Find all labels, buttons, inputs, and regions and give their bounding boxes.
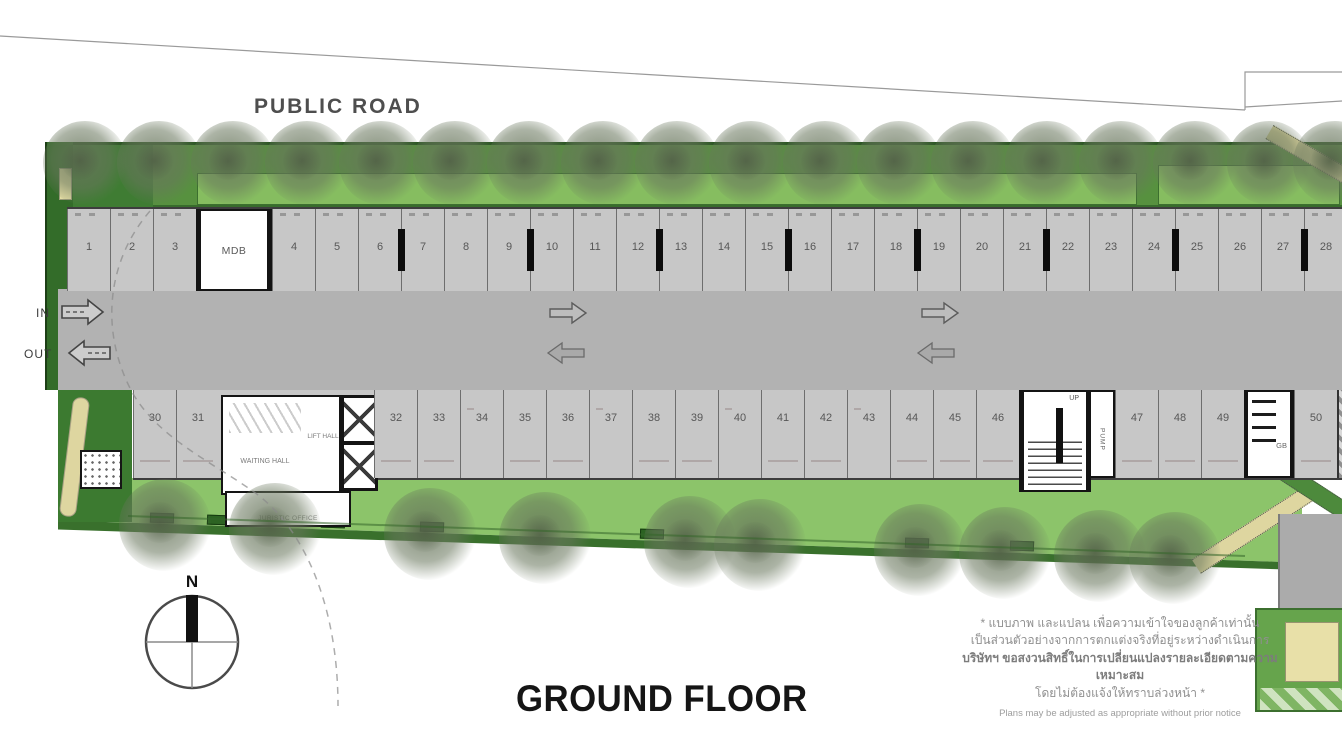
juristic-office-room: JURISTIC OFFICE xyxy=(225,491,351,527)
disclaimer-line-2: เป็นส่วนตัวอย่างจากการตกแต่งจริงที่อยู่ร… xyxy=(948,632,1292,649)
parking-stall-18: 18 xyxy=(874,209,917,291)
stall-number: 11 xyxy=(574,241,616,253)
north-compass: N xyxy=(135,565,250,700)
lift-shaft-1 xyxy=(341,395,378,444)
hedge-planter xyxy=(150,512,174,523)
stair-room: UP xyxy=(1019,390,1091,492)
disclaimer-line-4: โดยไม่ต้องแจ้งให้ทราบล่วงหน้า * xyxy=(948,685,1292,702)
stall-number: 41 xyxy=(762,412,804,424)
parking-stall-49: 49 xyxy=(1201,390,1244,478)
stall-number: 1 xyxy=(68,241,110,253)
stall-number: 39 xyxy=(676,412,718,424)
stall-number: 21 xyxy=(1004,241,1046,253)
stall-number: 42 xyxy=(805,412,847,424)
driveway-aisle xyxy=(58,289,1342,390)
parking-stall-10: 10 xyxy=(530,209,573,291)
parking-stall-42: 42 xyxy=(804,390,847,478)
parking-stall-26: 26 xyxy=(1218,209,1261,291)
waiting-hall-label: WAITING HALL xyxy=(223,458,307,465)
stall-number: 3 xyxy=(154,241,196,253)
stall-number: 13 xyxy=(660,241,702,253)
parking-stall-3: 3 xyxy=(153,209,196,291)
stall-number: 31 xyxy=(177,412,219,424)
parking-stall-40: 40 xyxy=(718,390,761,478)
parking-stall-6: 6 xyxy=(358,209,401,291)
hedge-planter xyxy=(1010,541,1034,552)
stall-number: 26 xyxy=(1219,241,1261,253)
parking-stall-28: 28 xyxy=(1304,209,1342,291)
stall-number: 24 xyxy=(1133,241,1175,253)
guard-sign-box xyxy=(80,450,122,489)
stall-number: 14 xyxy=(703,241,745,253)
stall-number: 43 xyxy=(848,412,890,424)
mdb-label: MDB xyxy=(201,245,267,257)
hedge-planter xyxy=(640,528,664,539)
stair-wall xyxy=(1056,408,1063,463)
stall-number: 48 xyxy=(1159,412,1201,424)
stall-number: 15 xyxy=(746,241,788,253)
stall-number: 9 xyxy=(488,241,530,253)
parking-stall-39: 39 xyxy=(675,390,718,478)
floor-plan: PUBLIC ROAD GROUND FLOOR IN OUT 123 MDB … xyxy=(0,0,1342,754)
lift-shaft-2 xyxy=(341,442,378,491)
parking-stall-47: 47 xyxy=(1115,390,1158,478)
stall-number: 47 xyxy=(1116,412,1158,424)
parking-stall-50: 50 xyxy=(1294,390,1337,478)
stall-number: 10 xyxy=(531,241,573,253)
parking-stall-44: 44 xyxy=(890,390,933,478)
disclaimer-line-3: บริษัทฯ ขอสงวนสิทธิ์ในการเปลี่ยนแปลงรายล… xyxy=(948,650,1292,685)
stall-number: 36 xyxy=(547,412,589,424)
parking-stall-46: 46 xyxy=(976,390,1019,478)
adjacent-roof xyxy=(1278,514,1342,610)
stall-number: 17 xyxy=(832,241,874,253)
parking-stall-30: 30 xyxy=(133,390,176,478)
north-letter: N xyxy=(186,572,198,591)
parking-stall-23: 23 xyxy=(1089,209,1132,291)
site-boundary-line xyxy=(0,36,1245,110)
disclaimer-line-1: * แบบภาพ และแปลน เพื่อความเข้าใจของลูกค้… xyxy=(948,615,1292,632)
stall-number: 50 xyxy=(1295,412,1337,424)
pump-room: PUMP xyxy=(1091,390,1115,478)
parking-stall-25: 25 xyxy=(1175,209,1218,291)
mdb-room: MDB xyxy=(196,209,272,291)
stall-number: 16 xyxy=(789,241,831,253)
stall-number: 40 xyxy=(719,412,761,424)
stall-number: 44 xyxy=(891,412,933,424)
stall-number: 4 xyxy=(273,241,315,253)
parking-stall-41: 41 xyxy=(761,390,804,478)
stall-number: 33 xyxy=(418,412,460,424)
parking-stall-37: 37 xyxy=(589,390,632,478)
garbage-label: GB xyxy=(1276,441,1287,450)
lift-hall-room: LIFT HALL xyxy=(307,395,341,495)
stall-number: 22 xyxy=(1047,241,1089,253)
stall-number: 46 xyxy=(977,412,1019,424)
parking-stall-43: 43 xyxy=(847,390,890,478)
neighbor-structure-outline xyxy=(1245,72,1342,110)
parking-stall-48: 48 xyxy=(1158,390,1201,478)
stall-number: 32 xyxy=(375,412,417,424)
disclaimer-block: * แบบภาพ และแปลน เพื่อความเข้าใจของลูกค้… xyxy=(948,615,1292,721)
parking-stall-7: 7 xyxy=(401,209,444,291)
left-path-chip xyxy=(59,168,72,200)
parking-stall-19: 19 xyxy=(917,209,960,291)
parking-stall-32: 32 xyxy=(374,390,417,478)
waiting-hall-room: WAITING HALL xyxy=(221,395,309,495)
stair-up-label: UP xyxy=(1069,395,1079,402)
parking-stall-35: 35 xyxy=(503,390,546,478)
garbage-room: GB xyxy=(1244,390,1294,478)
in-label: IN xyxy=(36,306,50,320)
stall-number: 19 xyxy=(918,241,960,253)
stall-number: 28 xyxy=(1305,241,1342,253)
parking-stall-20: 20 xyxy=(960,209,1003,291)
parking-stall-22: 22 xyxy=(1046,209,1089,291)
parking-stall-14: 14 xyxy=(702,209,745,291)
parking-stall-16: 16 xyxy=(788,209,831,291)
out-label: OUT xyxy=(24,347,52,361)
stall-number: 23 xyxy=(1090,241,1132,253)
parking-stall-4: 4 xyxy=(272,209,315,291)
stall-number: 6 xyxy=(359,241,401,253)
lobby-block: WAITING HALL LIFT HALL JURISTIC OFFICE xyxy=(219,390,374,478)
stall-number: 5 xyxy=(316,241,358,253)
juristic-office-label: JURISTIC OFFICE xyxy=(227,515,349,522)
stall-number: 12 xyxy=(617,241,659,253)
bottom-stall-row: 3031 WAITING HALL LIFT HALL JURISTIC OFF… xyxy=(133,390,1342,480)
stall-number: 18 xyxy=(875,241,917,253)
parking-stall-5: 5 xyxy=(315,209,358,291)
top-stall-row: 123 MDB 45678910111213141516171819202122… xyxy=(67,207,1342,291)
top-strip-lawn-panel-right xyxy=(1158,165,1340,205)
stall-number: 38 xyxy=(633,412,675,424)
top-strip-lawn-panel xyxy=(197,173,1137,205)
parking-stall-12: 12 xyxy=(616,209,659,291)
stall-number: 49 xyxy=(1202,412,1244,424)
parking-stall-24: 24 xyxy=(1132,209,1175,291)
parking-stall-34: 34 xyxy=(460,390,503,478)
garden-court-pad xyxy=(1285,622,1339,682)
stall-number: 25 xyxy=(1176,241,1218,253)
hedge-planter xyxy=(905,537,929,548)
neighbor-structure-outline-2 xyxy=(1245,101,1342,107)
parking-stall-38: 38 xyxy=(632,390,675,478)
parking-stall-11: 11 xyxy=(573,209,616,291)
page-title: GROUND FLOOR xyxy=(516,678,808,720)
public-road-label: PUBLIC ROAD xyxy=(254,95,422,119)
parking-stall-13: 13 xyxy=(659,209,702,291)
disclaimer-line-en: Plans may be adjusted as appropriate wit… xyxy=(948,707,1292,721)
parking-stall-8: 8 xyxy=(444,209,487,291)
stall-number: 2 xyxy=(111,241,153,253)
stall-number: 20 xyxy=(961,241,1003,253)
stall-number: 45 xyxy=(934,412,976,424)
parking-stall-36: 36 xyxy=(546,390,589,478)
parking-stall-2: 2 xyxy=(110,209,153,291)
stall-number: 30 xyxy=(134,412,176,424)
parking-stall-45: 45 xyxy=(933,390,976,478)
stall-number: 7 xyxy=(402,241,444,253)
parking-stall-21: 21 xyxy=(1003,209,1046,291)
lift-hall-label: LIFT HALL xyxy=(307,433,339,441)
stall-number: 34 xyxy=(461,412,503,424)
top-landscape-strip xyxy=(45,142,1342,207)
parking-stall-15: 15 xyxy=(745,209,788,291)
parking-stall-9: 9 xyxy=(487,209,530,291)
pump-label: PUMP xyxy=(1091,404,1113,474)
section-cut-wall xyxy=(1337,390,1342,478)
compass-north-needle xyxy=(186,595,198,642)
parking-stall-27: 27 xyxy=(1261,209,1304,291)
stall-number: 37 xyxy=(590,412,632,424)
parking-stall-17: 17 xyxy=(831,209,874,291)
stall-number: 27 xyxy=(1262,241,1304,253)
stall-number: 35 xyxy=(504,412,546,424)
parking-stall-1: 1 xyxy=(67,209,110,291)
stall-number: 8 xyxy=(445,241,487,253)
parking-stall-31: 31 xyxy=(176,390,219,478)
parking-stall-33: 33 xyxy=(417,390,460,478)
hedge-planter xyxy=(420,521,444,532)
